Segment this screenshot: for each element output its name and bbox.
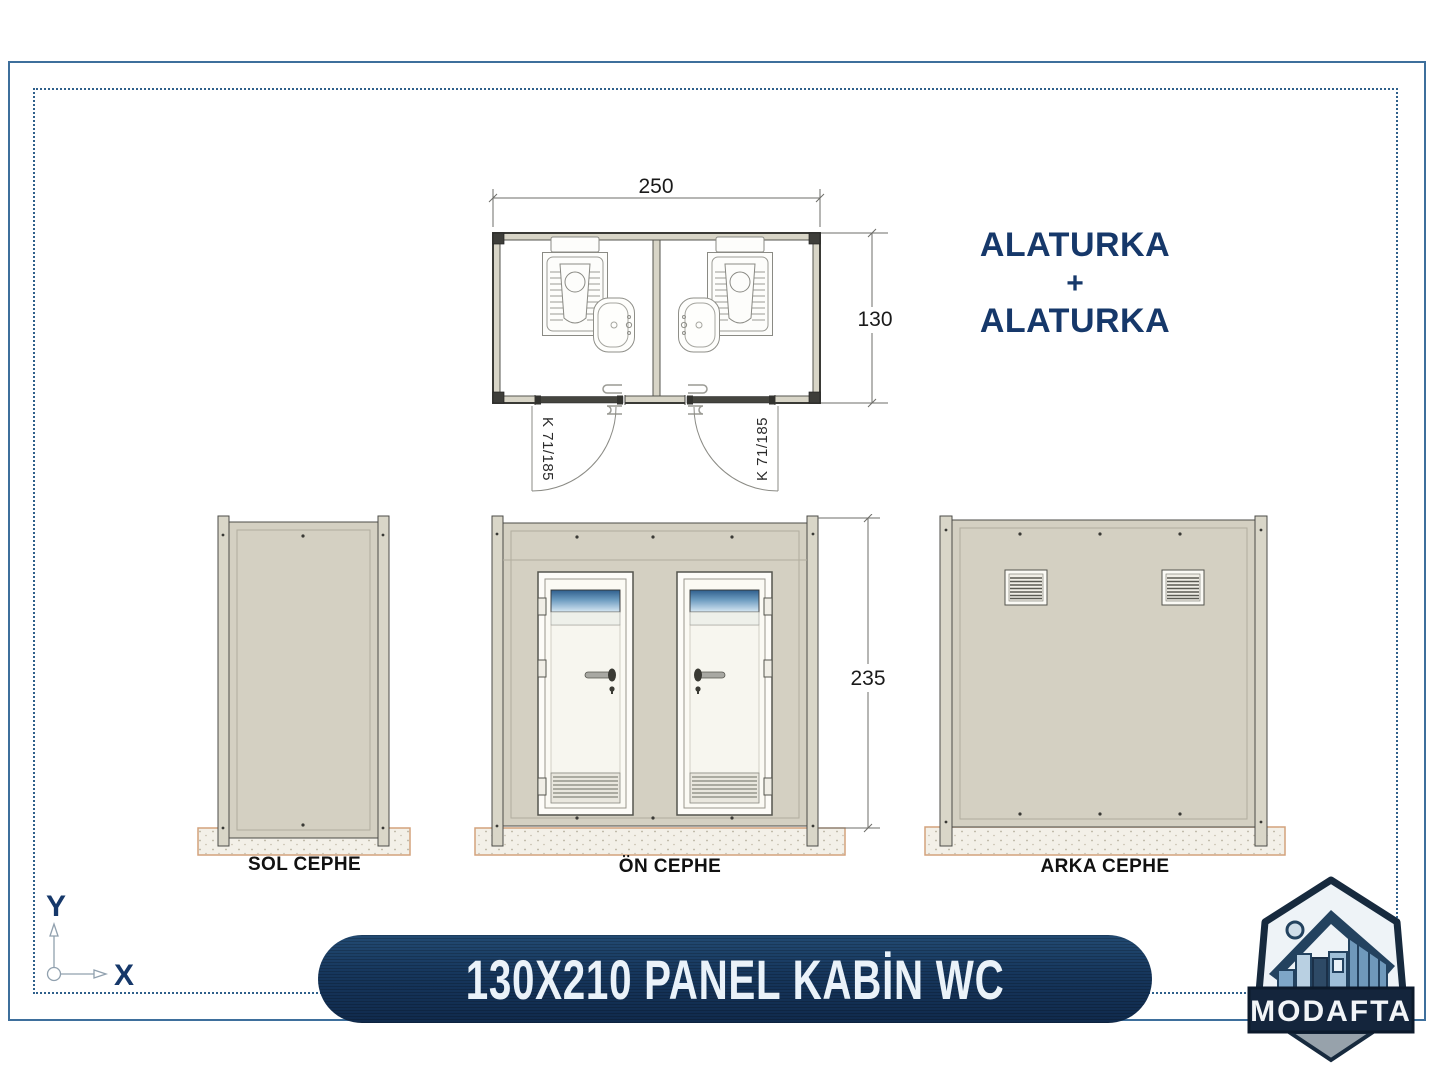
vent-grille-left [1005, 570, 1047, 605]
corner-post [807, 516, 818, 846]
brand-logo: MODAFTA [1245, 874, 1417, 1066]
title-banner: 130X210 PANEL KABİN WC [318, 935, 1152, 1023]
cistern-right [716, 237, 764, 252]
note-line2: ALATURKA [952, 300, 1198, 343]
wall-panel [229, 522, 378, 838]
corner-post [940, 516, 952, 846]
corner-post [378, 516, 389, 846]
page: 250 130 [0, 0, 1433, 1080]
corner-post [218, 516, 229, 846]
plan-view: 250 130 [480, 175, 900, 510]
axis-x-label: X [114, 959, 134, 992]
front-elevation-label: ÖN CEPHE [470, 856, 870, 878]
corner-post [1255, 516, 1267, 846]
note-plus: + [952, 267, 1198, 300]
basin-left [594, 298, 635, 352]
back-elevation [920, 514, 1290, 859]
back-elevation-label: ARKA CEPHE [920, 856, 1290, 878]
plan-partition-wall [653, 240, 660, 396]
fixture-note: ALATURKA + ALATURKA [952, 224, 1198, 342]
cistern-left [551, 237, 599, 252]
note-line1: ALATURKA [952, 224, 1198, 267]
wall-panel [952, 520, 1255, 827]
door-right [677, 572, 772, 815]
basin-right [679, 298, 720, 352]
height-label: 235 [850, 667, 885, 690]
left-elevation-label: SOL CEPHE [197, 854, 412, 876]
axis-y-label: Y [46, 890, 66, 923]
corner-post [492, 516, 503, 846]
door-right-size-label: K 71/185 [754, 417, 771, 481]
axis-indicator: Y X [34, 890, 154, 995]
plan-depth-label: 130 [857, 308, 892, 331]
drawing-title: 130X210 PANEL KABİN WC [466, 947, 1005, 1012]
vent-grille-right [1162, 570, 1204, 605]
left-elevation [197, 514, 412, 858]
logo-brand-text: MODAFTA [1250, 995, 1412, 1028]
door-left-size-label: K 71/185 [539, 417, 556, 481]
logo-shield-tip [1289, 1032, 1373, 1060]
plan-width-label: 250 [638, 175, 673, 198]
front-elevation: 235 [470, 514, 895, 859]
door-left [538, 572, 633, 815]
